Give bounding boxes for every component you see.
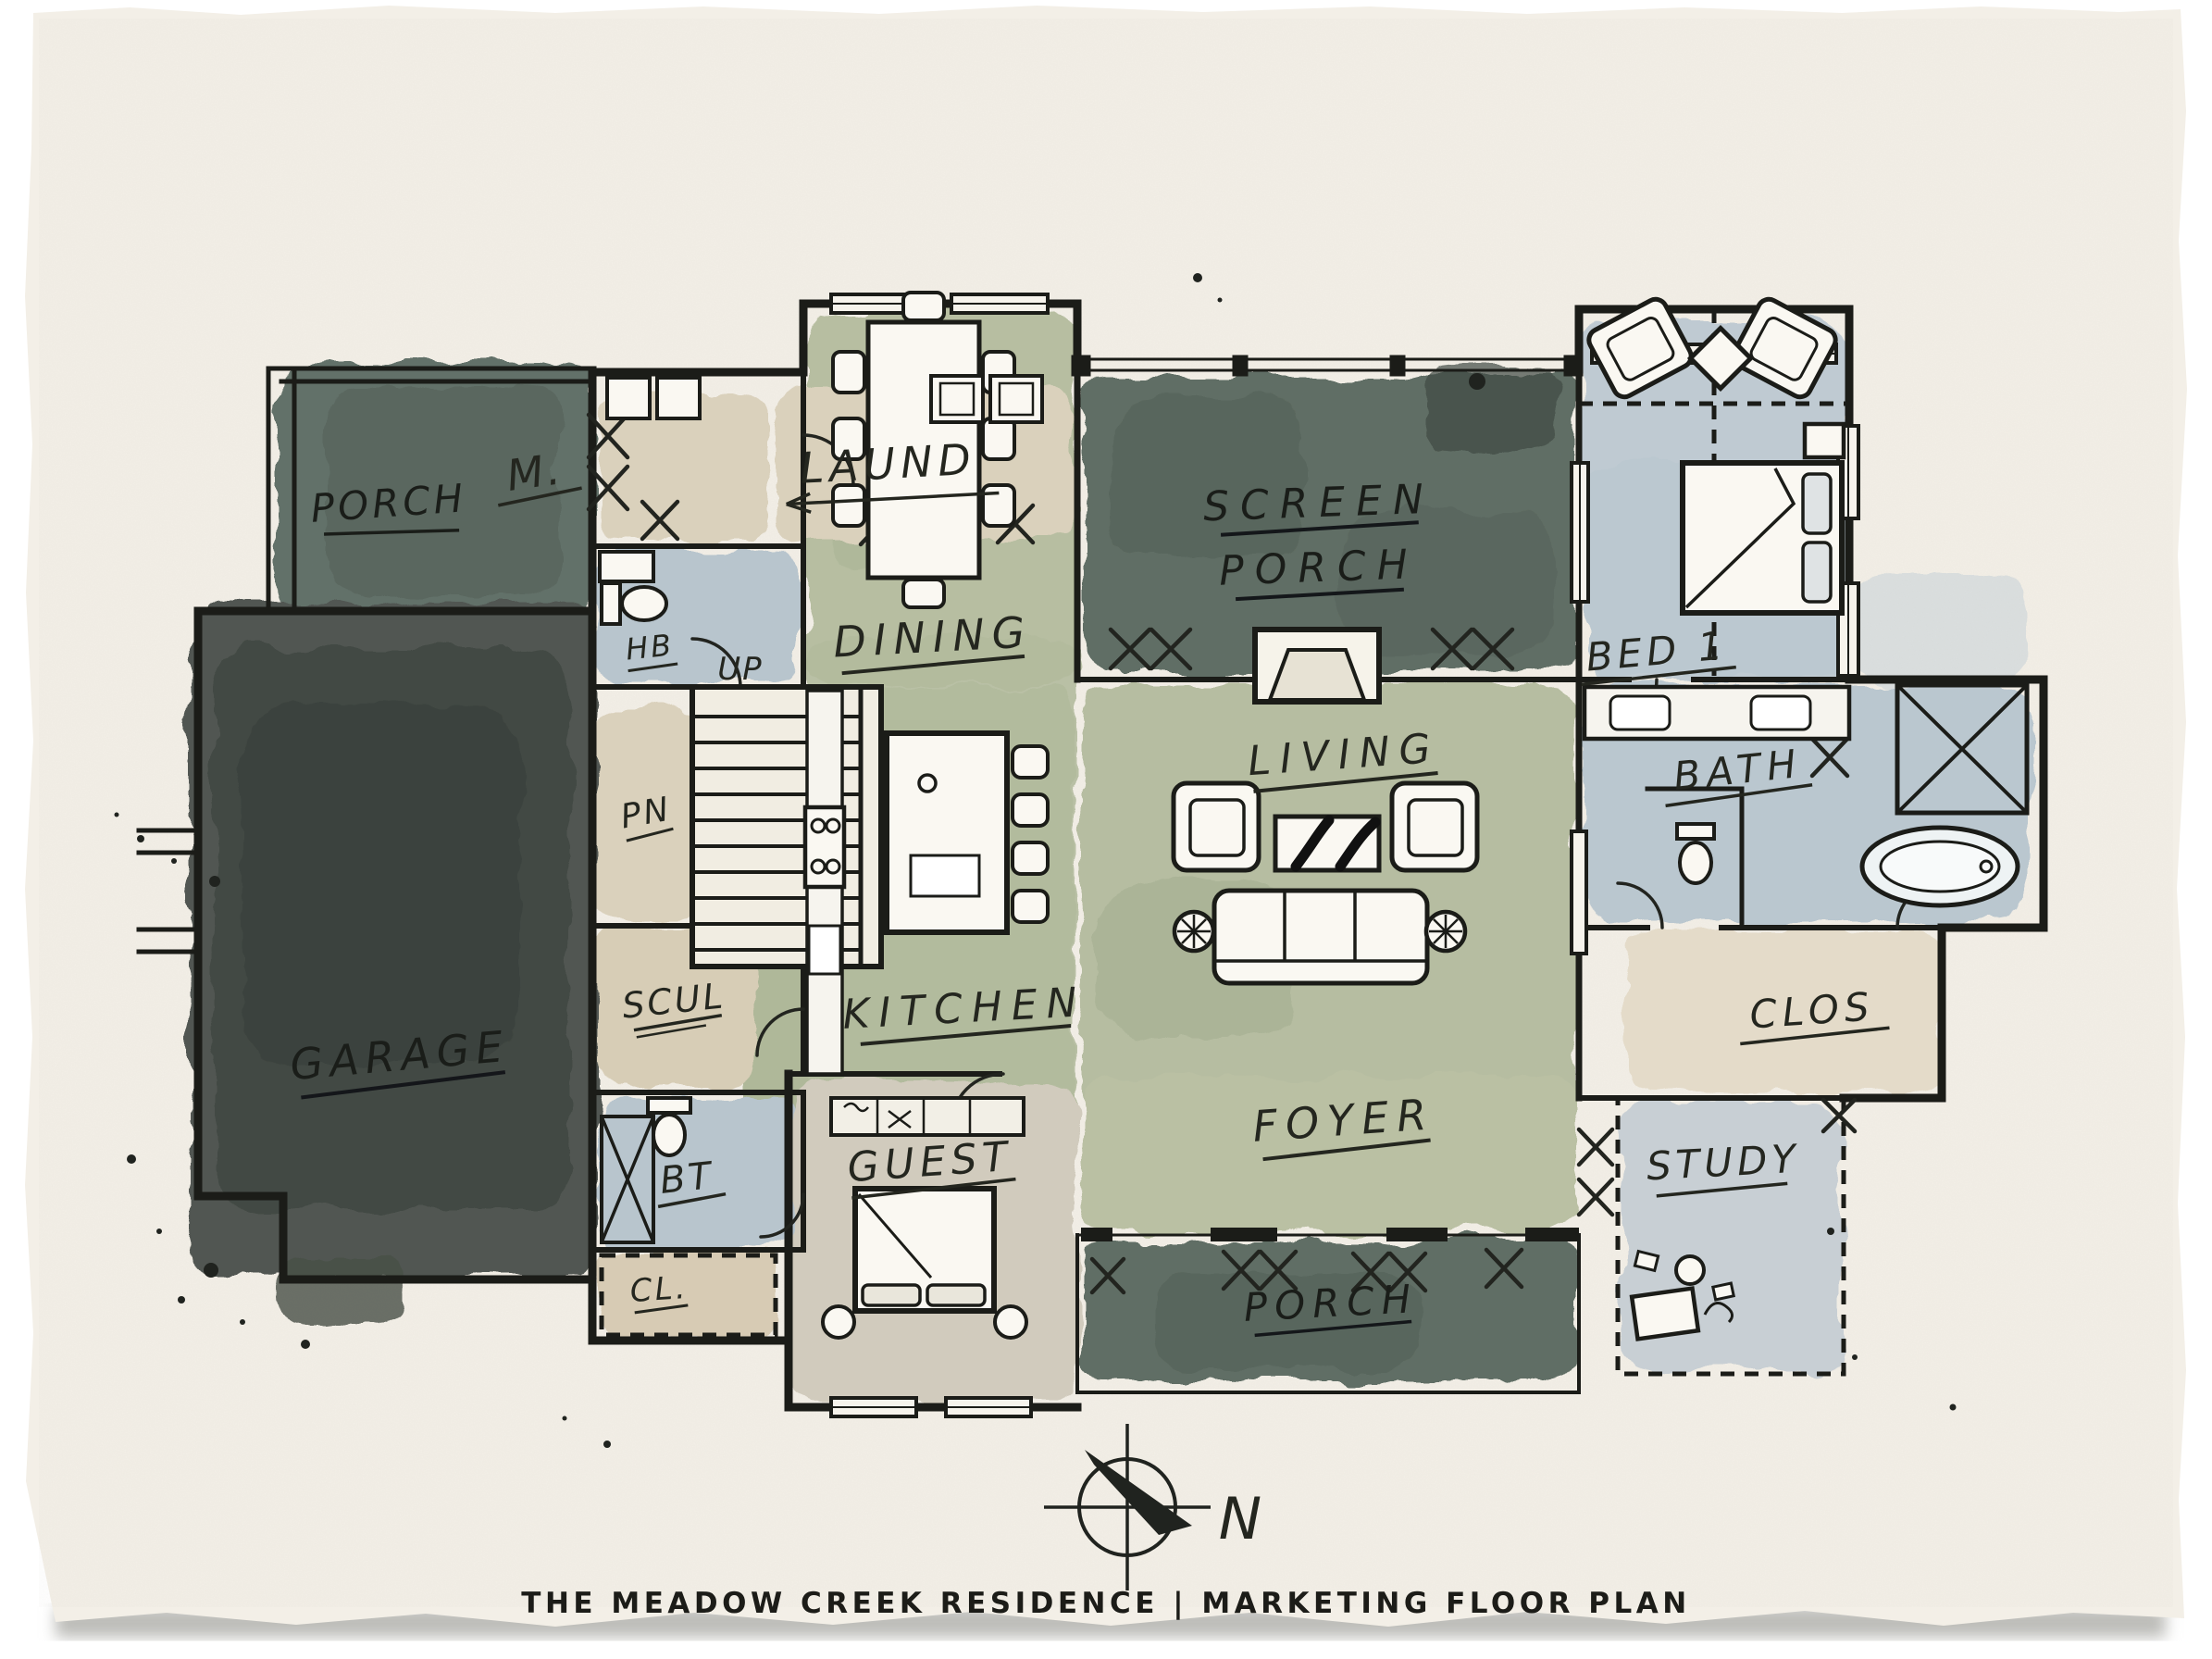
splatter [1469,373,1485,390]
room-label: HB [624,627,676,667]
floor-plan-drawing: PORCH M. LAUND HB UP PN DINING SCREEN [0,0,2212,1659]
splatter [603,1441,611,1448]
kitchen-island [887,733,1007,932]
pillow [1803,474,1831,533]
porch-column [1211,1228,1277,1241]
porch-post [1072,355,1090,376]
room-label: LAUND [799,434,977,493]
toilet-bowl [1680,842,1711,883]
wash-bath-spill [1851,572,2027,685]
splatter [240,1319,245,1325]
room-label: CLOS [1748,983,1876,1037]
splatter [1218,298,1223,303]
porch-column [1386,1228,1448,1241]
splatter [563,1416,567,1421]
porch-post [1390,355,1405,376]
splatter [1852,1354,1858,1360]
wash-garage-drip [278,1259,407,1324]
island-stool [1013,746,1048,778]
splatter [178,1296,185,1303]
guest-dresser [831,1098,1024,1135]
desk-paper [1713,1283,1734,1300]
toilet-tank [1677,824,1714,839]
desk-chair [1676,1256,1704,1284]
wash-garage-darker [242,704,520,1065]
splatter [1827,1228,1834,1235]
porch-column [1081,1228,1112,1241]
wash-screen-porch-blot [1427,367,1557,452]
floor-plan-page: PORCH M. LAUND HB UP PN DINING SCREEN [0,0,2212,1659]
splatter [115,813,119,817]
sofa [1214,891,1427,983]
fireplace [1255,630,1379,702]
armchair [1174,783,1259,870]
porch-post [1233,355,1248,376]
room-label: CL. [629,1269,690,1310]
round-side-table [823,1306,854,1338]
pillow [1803,543,1831,602]
fireplace-hearth [1270,650,1364,700]
staircase [692,687,881,967]
study-desk [1632,1289,1698,1340]
vanity-sink [1610,696,1670,730]
hb-toilet-bowl [622,587,666,620]
label-closet2: CL. [629,1269,690,1313]
dining-chair [903,580,944,607]
pillow [863,1285,920,1305]
room-label: BT [658,1154,716,1203]
island-sink [911,855,979,896]
nightstand [1805,424,1844,457]
dining-chair [903,293,944,320]
splatter [1950,1404,1957,1411]
compass-north-label: N [1219,1485,1261,1553]
armchair [1392,783,1477,870]
pillow [927,1285,985,1305]
bt-toilet-tank [648,1098,690,1113]
mud-cabinet [607,378,650,418]
dining-chair [833,352,864,393]
freestanding-tub [1862,828,2018,905]
splatter [137,835,144,842]
room-label: PORCH [1218,541,1419,594]
mud-cabinet [657,378,700,418]
kitchen-sink [809,926,840,974]
island-stool [1013,891,1048,922]
splatter [156,1229,162,1234]
opening-living-east [1572,831,1586,954]
toilet [1677,824,1714,883]
splatter [171,858,177,864]
splatter [127,1154,136,1164]
splatter [1193,273,1202,282]
dining-chair [983,485,1014,526]
splatter [209,876,220,887]
kitchen-range [805,807,844,887]
dining-chair [983,418,1014,459]
porch-post [1564,355,1583,376]
plan-title: THE MEADOW CREEK RESIDENCE | MARKETING F… [521,1587,1690,1620]
hb-toilet-tank [602,583,620,624]
label-stair-up: UP [717,651,763,688]
island-stool [1013,842,1048,874]
label-half-bath: HB [624,627,677,670]
splatter [204,1263,218,1278]
island-stool [1013,794,1048,826]
vanity-sink [1751,696,1810,730]
wash-closet2 [598,1250,781,1339]
porch-column [1525,1228,1579,1241]
splatter [301,1340,310,1349]
desk-paper [1634,1252,1658,1271]
room-label: STUDY [1646,1136,1801,1190]
bt-toilet-bowl [653,1115,685,1155]
hb-sink [600,552,653,581]
round-side-table [995,1306,1026,1338]
